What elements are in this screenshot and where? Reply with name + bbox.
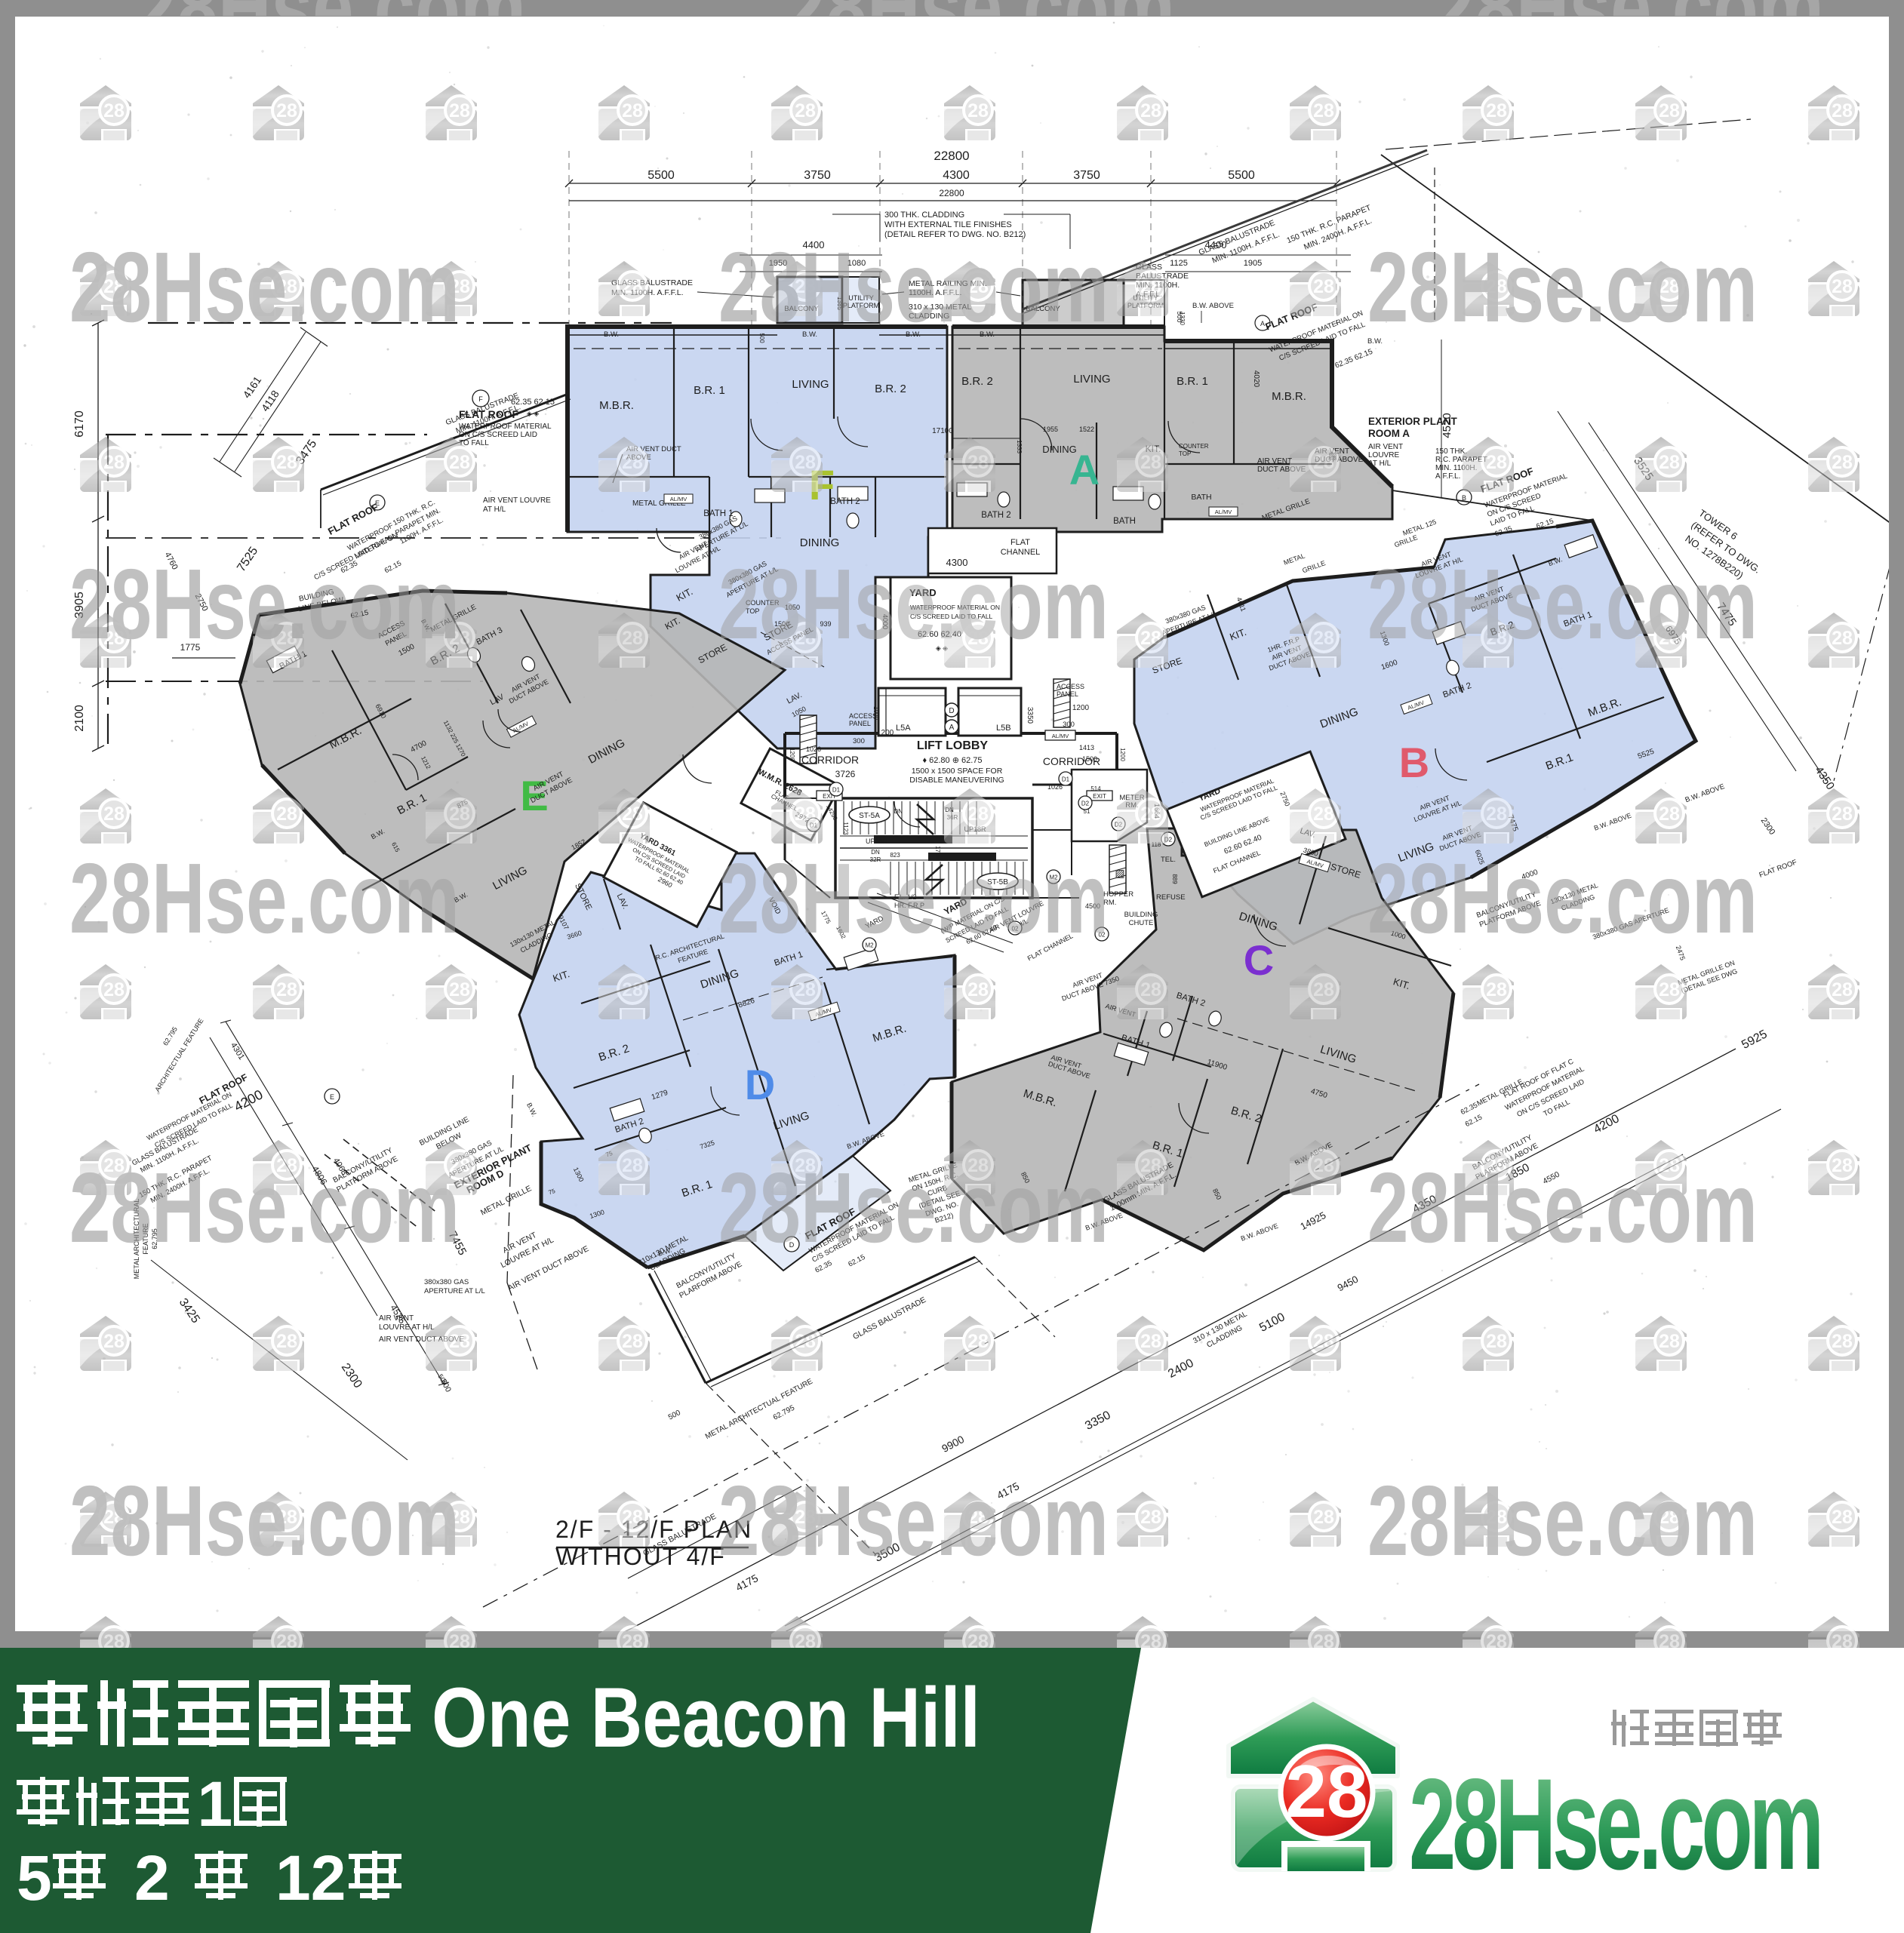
svg-text:B.W.: B.W. [604,330,619,339]
svg-text:3350: 3350 [1026,707,1034,724]
svg-text:28Hse.com: 28Hse.com [1367,843,1758,954]
svg-text:4300: 4300 [943,169,970,182]
svg-text:1200: 1200 [877,729,894,737]
svg-text:A.F.F.L.: A.F.F.L. [1435,472,1460,481]
svg-text:AIR VENT: AIR VENT [1368,443,1403,451]
svg-text:FLAT: FLAT [1010,538,1030,547]
svg-text:1333: 1333 [1016,440,1023,453]
svg-text:B.R. 2: B.R. 2 [961,375,993,388]
svg-text:1123: 1123 [842,822,849,835]
svg-text:One Beacon Hill: One Beacon Hill [432,1670,980,1765]
svg-text:◈ ◈: ◈ ◈ [527,410,539,417]
svg-text:28Hse.com: 28Hse.com [718,843,1109,954]
svg-text:ON C/S SCREED LAID: ON C/S SCREED LAID [459,431,537,439]
svg-text:D: D [745,1061,775,1108]
svg-text:PANEL: PANEL [849,720,871,727]
svg-text:D1: D1 [1062,776,1070,783]
svg-text:28Hse.com: 28Hse.com [69,843,460,954]
svg-text:28Hse.com: 28Hse.com [1367,1152,1758,1263]
svg-text:17100: 17100 [932,427,953,435]
svg-text:B: B [1399,739,1429,786]
svg-text:1125: 1125 [1170,259,1188,268]
svg-text:28Hse.com: 28Hse.com [718,232,1109,343]
svg-text:AL/MV: AL/MV [1215,509,1232,515]
svg-text:D1: D1 [832,787,841,794]
svg-text:BUILDING: BUILDING [1124,911,1158,919]
svg-text:D: D [949,707,954,715]
svg-text:AT H/L: AT H/L [483,506,506,514]
svg-text:B.R. 1: B.R. 1 [1177,375,1208,388]
svg-text:CORRIDOR: CORRIDOR [801,754,859,766]
svg-text:28Hse.com: 28Hse.com [69,1465,460,1576]
svg-text:4520: 4520 [1441,413,1453,438]
svg-text:ACCESS: ACCESS [1057,683,1084,690]
svg-text:AIR VENT LOUVRE: AIR VENT LOUVRE [483,496,551,505]
svg-text:4020: 4020 [1252,370,1260,388]
svg-text:300: 300 [1063,721,1075,729]
svg-text:1522: 1522 [1079,426,1094,433]
svg-text:300: 300 [853,737,865,745]
svg-text:5500: 5500 [647,169,675,182]
svg-text:3750: 3750 [804,169,831,182]
svg-text:EXIT: EXIT [1093,793,1106,800]
svg-text:AIR VENT: AIR VENT [379,1314,414,1323]
svg-text:B.W. ABOVE: B.W. ABOVE [1192,302,1234,310]
svg-text:5500: 5500 [1228,169,1255,182]
svg-text:M.B.R.: M.B.R. [599,399,634,412]
svg-text:LOUVRE: LOUVRE [1368,451,1399,459]
svg-text:AIR VENT: AIR VENT [1257,457,1292,466]
svg-text:1905: 1905 [1244,259,1262,268]
svg-text:BATH 2: BATH 2 [830,497,860,506]
svg-text:3726: 3726 [835,769,856,779]
svg-text:PANEL: PANEL [1057,690,1078,698]
svg-text:28Hse.com: 28Hse.com [1367,232,1758,343]
svg-text:LIFT LOBBY: LIFT LOBBY [917,739,989,752]
svg-text:2100: 2100 [73,705,86,732]
svg-text:28Hse.com: 28Hse.com [1367,549,1758,659]
svg-text:COUNTER: COUNTER [1179,443,1209,450]
svg-text:B.R. 2: B.R. 2 [875,383,906,395]
svg-text:▨: ▨ [1115,867,1124,879]
svg-text:500: 500 [1176,311,1183,322]
svg-text:REFUSE: REFUSE [1156,893,1186,902]
svg-text:889: 889 [1171,874,1178,884]
svg-text:1413: 1413 [1079,744,1094,751]
svg-text:BATH: BATH [1113,517,1136,526]
svg-text:150 THK.: 150 THK. [1435,447,1467,456]
svg-text:WITHOUT 4/F: WITHOUT 4/F [555,1543,726,1570]
svg-text:28Hse.com: 28Hse.com [1367,1465,1758,1576]
svg-text:BATH: BATH [1191,493,1211,502]
svg-text:1955: 1955 [1043,426,1058,433]
svg-text:D2: D2 [1081,801,1090,807]
svg-text:1: 1 [198,1769,233,1839]
svg-text:LOUVRE AT H/L: LOUVRE AT H/L [379,1323,435,1332]
svg-text:A: A [1069,446,1100,493]
svg-text:TEL.: TEL. [1161,856,1176,864]
svg-text:28Hse.com: 28Hse.com [69,1152,460,1263]
svg-text:1500: 1500 [1082,755,1097,763]
svg-text:5: 5 [17,1842,52,1913]
svg-text:WITH EXTERNAL TILE FINISHES: WITH EXTERNAL TILE FINISHES [884,220,1012,229]
svg-text:28Hse.com: 28Hse.com [718,1465,1109,1576]
svg-text:1026: 1026 [806,745,821,753]
svg-text:ROOM A: ROOM A [1368,428,1410,439]
svg-text:1026: 1026 [1047,783,1063,791]
svg-text:CHUTE: CHUTE [1129,919,1154,927]
svg-text:28Hse.com: 28Hse.com [1409,1752,1820,1897]
svg-text:♦ 62.80 ⊕ 62.75: ♦ 62.80 ⊕ 62.75 [922,756,982,765]
svg-text:3750: 3750 [1073,169,1100,182]
svg-text:22800: 22800 [939,188,964,198]
svg-text:12: 12 [275,1842,346,1913]
svg-text:28Hse.com: 28Hse.com [69,232,460,343]
svg-text:L5B: L5B [996,724,1011,733]
svg-text:1200: 1200 [789,748,795,761]
svg-text:28Hse.com: 28Hse.com [718,549,1109,659]
svg-text:DISABLE MANEUVERING: DISABLE MANEUVERING [909,776,1004,785]
svg-text:APERTURE AT L/L: APERTURE AT L/L [424,1287,485,1295]
svg-text:E: E [330,1093,334,1101]
svg-text:1200: 1200 [1119,748,1126,761]
svg-text:1200: 1200 [1072,704,1090,712]
svg-text:380x380 GAS: 380x380 GAS [424,1278,469,1286]
svg-text:BATH 2: BATH 2 [981,511,1010,520]
svg-text:F: F [478,395,483,403]
svg-text:300 THK. CLADDING: 300 THK. CLADDING [884,211,964,220]
svg-text:6170: 6170 [73,410,86,438]
svg-text:LIVING: LIVING [792,378,829,391]
svg-text:28: 28 [1285,1750,1367,1833]
svg-text:A: A [949,724,955,732]
svg-text:C: C [1244,936,1274,984]
svg-text:28Hse.com: 28Hse.com [69,549,460,659]
svg-text:B.R. 1: B.R. 1 [694,384,725,397]
svg-text:1500 x 1500 SPACE FOR: 1500 x 1500 SPACE FOR [912,767,1003,776]
svg-text:28Hse.com: 28Hse.com [718,1152,1109,1263]
svg-text:AL/MV: AL/MV [1052,733,1069,739]
svg-text:22800: 22800 [934,149,969,163]
svg-text:AT H/L: AT H/L [1368,459,1392,468]
svg-text:ACCESS: ACCESS [849,712,877,720]
svg-text:AL/MV: AL/MV [670,496,687,502]
svg-text:M.B.R.: M.B.R. [1272,390,1306,403]
svg-text:ST-5A: ST-5A [859,812,880,820]
svg-text:2: 2 [134,1842,170,1913]
svg-text:L5A: L5A [896,724,911,733]
svg-text:DINING: DINING [800,536,840,549]
svg-text:LIVING: LIVING [1073,373,1110,386]
